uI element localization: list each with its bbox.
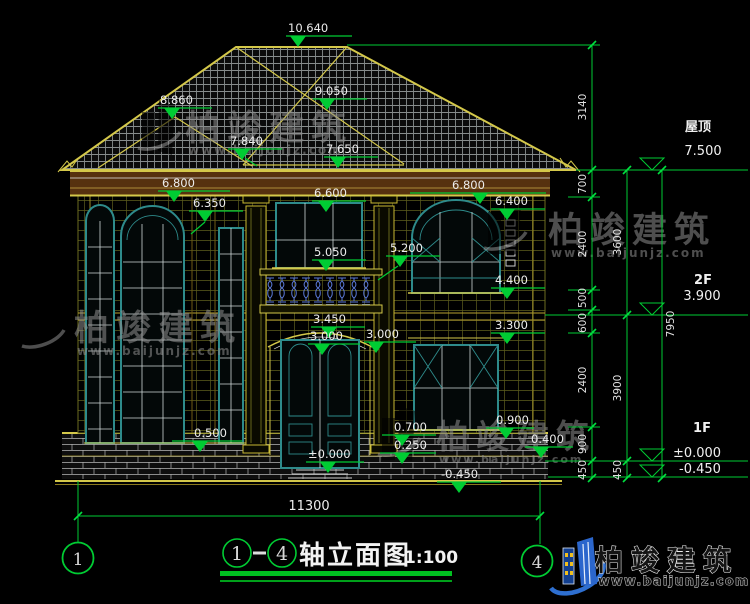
svg-text:450: 450	[577, 460, 589, 480]
svg-text:±0.000: ±0.000	[308, 447, 351, 461]
svg-text:3900: 3900	[612, 375, 624, 402]
level-value-ground: -0.450	[679, 462, 721, 477]
svg-text:9.050: 9.050	[315, 84, 348, 98]
svg-text:3600: 3600	[612, 229, 624, 256]
svg-text:0.700: 0.700	[394, 420, 427, 434]
svg-text:5.050: 5.050	[314, 245, 347, 259]
svg-text:0.250: 0.250	[394, 438, 427, 452]
title-dash	[253, 552, 266, 555]
svg-text:6.400: 6.400	[495, 194, 528, 208]
company-logo: 柏竣建筑 www.baijunjz.com	[551, 537, 750, 593]
svg-text:500: 500	[577, 288, 589, 308]
svg-text:8.860: 8.860	[160, 93, 193, 107]
title-underline-thin	[220, 580, 452, 582]
svg-text:450: 450	[612, 460, 624, 480]
svg-text:www.baijunjz.com: www.baijunjz.com	[551, 246, 706, 260]
svg-text:6.800: 6.800	[452, 178, 485, 192]
svg-text:6.600: 6.600	[314, 186, 347, 200]
svg-text:0.400: 0.400	[531, 432, 564, 446]
svg-text:www.baijunjz.com: www.baijunjz.com	[188, 143, 343, 157]
cad-canvas: 柏竣建筑 www.baijunjz.com 柏竣建筑 www.baijunjz.…	[0, 0, 750, 604]
svg-text:3140: 3140	[577, 94, 589, 121]
svg-text:0.900: 0.900	[496, 413, 529, 427]
spot-ridge: 10.640	[286, 21, 352, 47]
elevation-drawing: 柏竣建筑 www.baijunjz.com 柏竣建筑 www.baijunjz.…	[0, 0, 750, 604]
level-markers: 屋顶 7.500 2F 3.900 1F ±0.000 -0.450	[640, 120, 722, 477]
title-underline	[220, 571, 452, 576]
level-label-2f: 2F	[694, 273, 712, 288]
svg-text:3.000: 3.000	[310, 329, 343, 343]
level-label-roof: 屋顶	[685, 120, 711, 135]
svg-text:7950: 7950	[665, 311, 677, 338]
svg-text:10.640: 10.640	[288, 21, 328, 35]
svg-text:-0.450: -0.450	[441, 467, 478, 481]
svg-text:1: 1	[73, 550, 84, 570]
svg-text:4: 4	[532, 553, 543, 573]
svg-text:3.450: 3.450	[313, 312, 346, 326]
level-value-roof: 7.500	[684, 144, 721, 159]
svg-text:2400: 2400	[577, 367, 589, 394]
svg-text:700: 700	[577, 174, 589, 194]
level-value-1f: ±0.000	[673, 446, 721, 461]
svg-text:5.200: 5.200	[390, 241, 423, 255]
title-block: 1 4 轴立面图 1:100	[220, 539, 458, 582]
title-axis-start: 1	[231, 543, 243, 565]
svg-text:7.840: 7.840	[230, 134, 263, 148]
svg-text:0.500: 0.500	[194, 426, 227, 440]
title-axis-end: 4	[276, 543, 288, 565]
svg-text:2400: 2400	[577, 231, 589, 258]
svg-text:www.baijunjz.com: www.baijunjz.com	[77, 344, 232, 358]
drawing-scale: 1:100	[404, 548, 458, 568]
svg-text:900: 900	[577, 434, 589, 454]
svg-text:3.000: 3.000	[366, 327, 399, 341]
level-label-1f: 1F	[693, 421, 711, 436]
svg-text:6.800: 6.800	[162, 176, 195, 190]
svg-text:柏竣建筑: 柏竣建筑	[548, 210, 716, 251]
level-value-2f: 3.900	[683, 289, 720, 304]
svg-text:600: 600	[577, 313, 589, 333]
svg-text:柏竣建筑: 柏竣建筑	[74, 308, 242, 349]
drawing-title: 轴立面图	[299, 540, 411, 571]
svg-text:3.300: 3.300	[495, 318, 528, 332]
svg-text:6.350: 6.350	[193, 196, 226, 210]
svg-text:7.650: 7.650	[326, 142, 359, 156]
overall-width: 11300	[288, 499, 329, 514]
svg-text:www.baijunjz.com: www.baijunjz.com	[439, 453, 583, 466]
svg-text:4.400: 4.400	[495, 273, 528, 287]
logo-url: www.baijunjz.com	[598, 573, 750, 588]
